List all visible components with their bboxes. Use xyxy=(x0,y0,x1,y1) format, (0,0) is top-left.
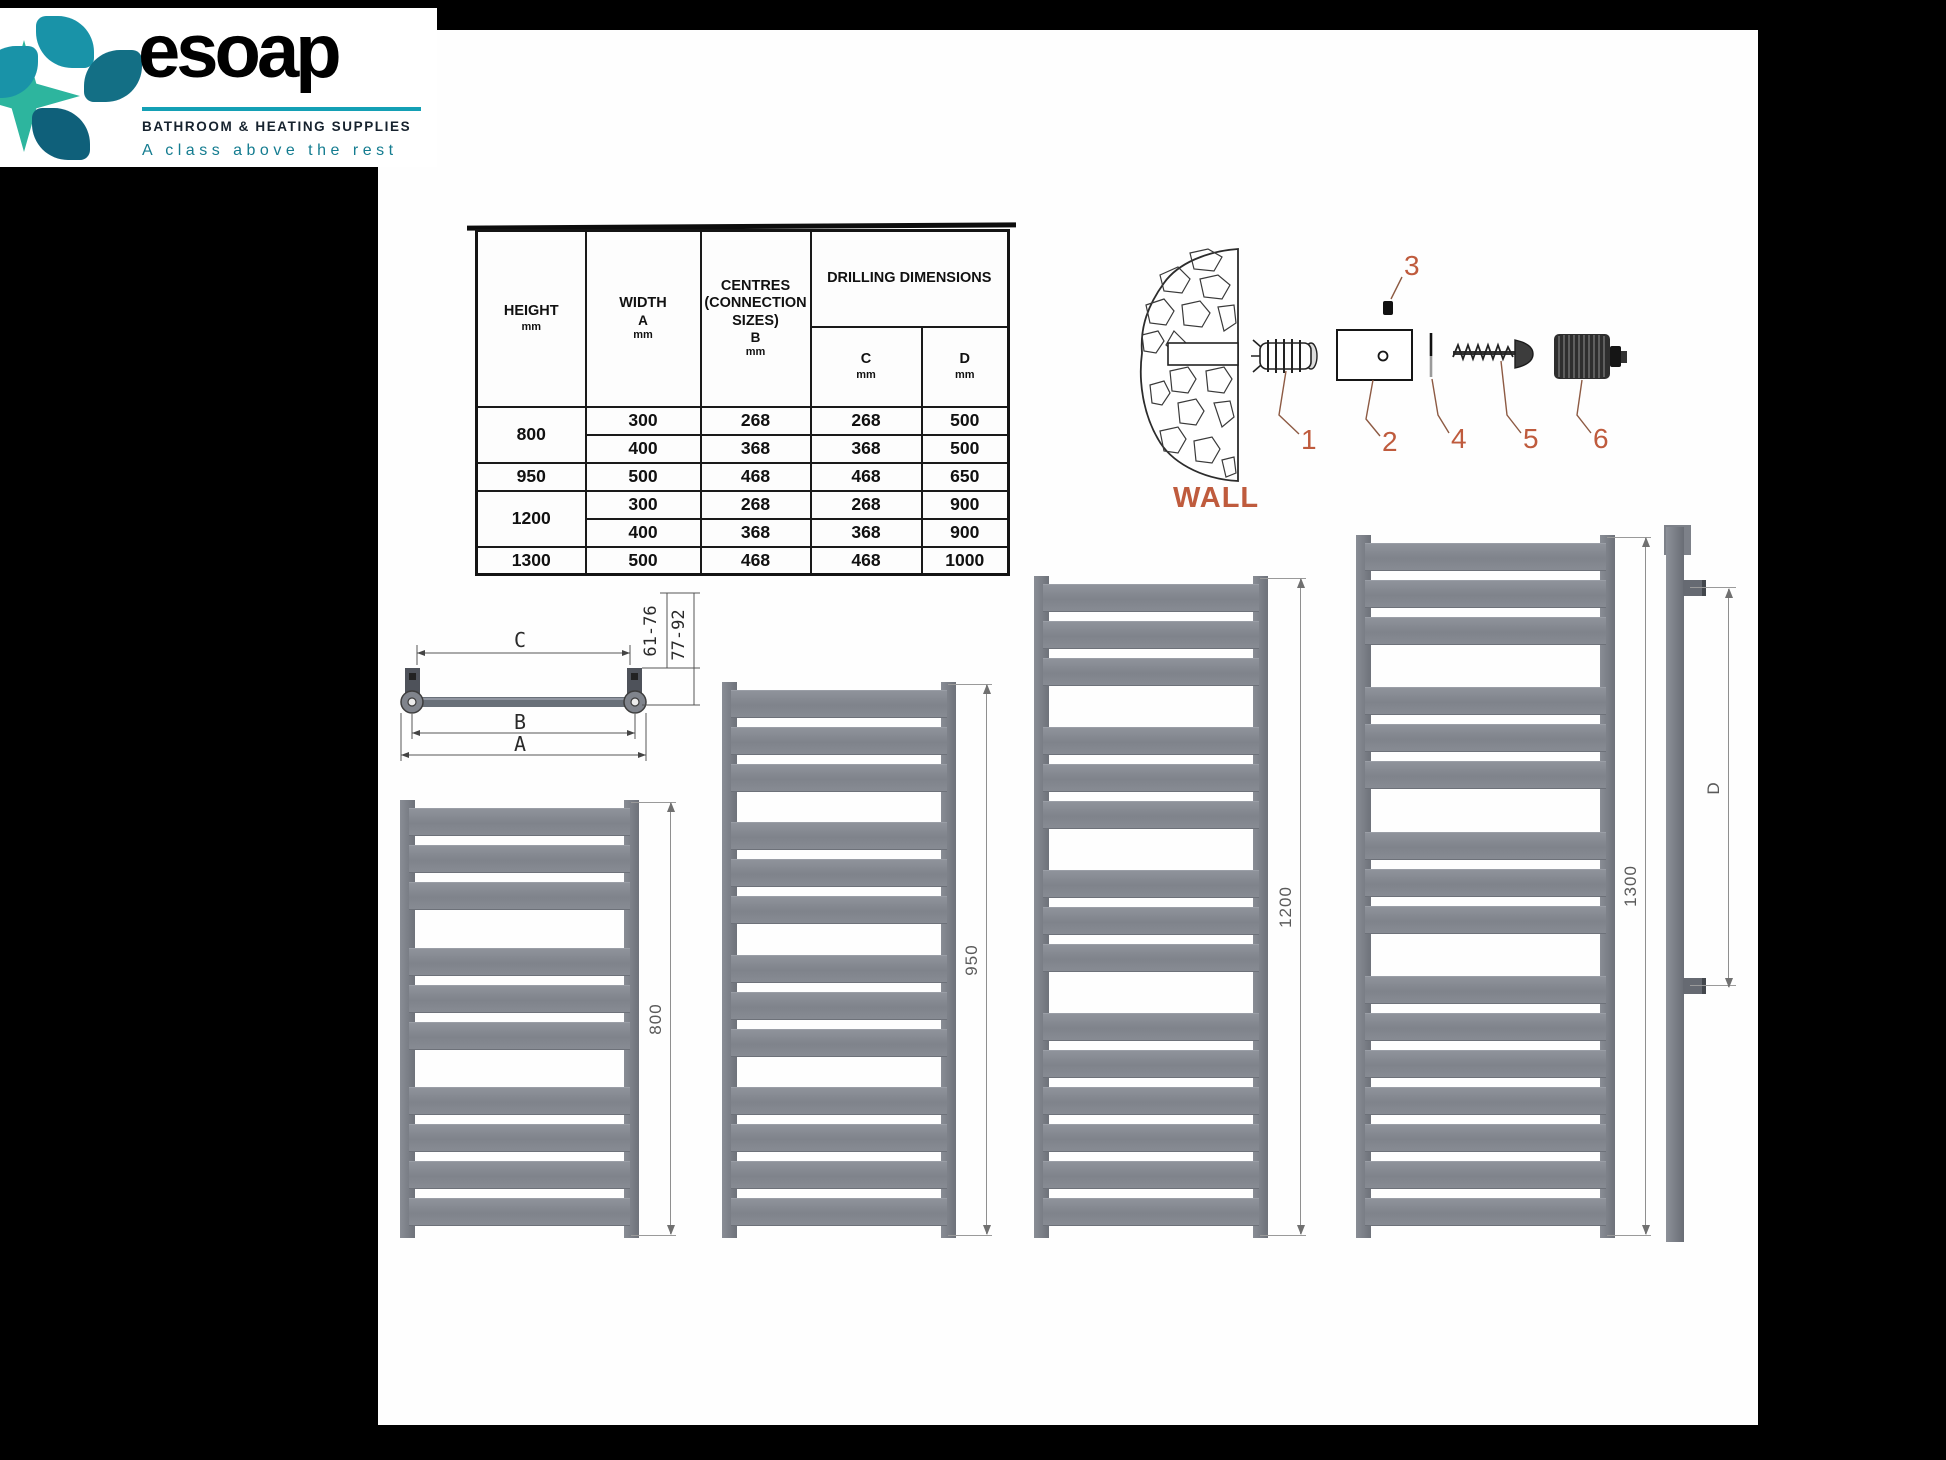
slat-gap xyxy=(1365,934,1606,976)
slat-group xyxy=(1043,727,1259,829)
slat-group xyxy=(409,1087,630,1226)
slat xyxy=(409,948,630,976)
slat-gap xyxy=(1365,645,1606,687)
slat xyxy=(731,822,947,850)
slat xyxy=(1043,764,1259,792)
slat xyxy=(1043,621,1259,649)
radiator-height-label: 1300 xyxy=(1621,862,1641,910)
slat xyxy=(1043,1198,1259,1226)
dim-line-height: 1200 xyxy=(1300,579,1301,1234)
dim-ext-bottom xyxy=(631,1235,676,1236)
slat-group xyxy=(731,822,947,924)
radiator-height-label: 950 xyxy=(962,941,982,978)
dim-ext-bottom xyxy=(1260,1235,1306,1236)
slat xyxy=(731,1029,947,1057)
side-view-bracket-bottom xyxy=(1683,978,1706,994)
radiator-height-label: 1200 xyxy=(1276,883,1296,931)
slat-gap xyxy=(409,1050,630,1088)
slat xyxy=(731,690,947,718)
slat xyxy=(1365,724,1606,752)
slat xyxy=(1365,906,1606,934)
radiator-1300 xyxy=(1356,535,1615,1238)
slat-group xyxy=(731,690,947,792)
slat xyxy=(409,808,630,836)
slat-group xyxy=(1365,832,1606,934)
radiator-slats xyxy=(1365,543,1606,1226)
slat xyxy=(1365,1087,1606,1115)
slat-group xyxy=(731,955,947,1057)
slat-gap xyxy=(409,910,630,948)
dim-line-height: 950 xyxy=(986,685,987,1234)
slat xyxy=(1043,1087,1259,1115)
radiator-1200 xyxy=(1034,576,1268,1238)
side-dim-line: D xyxy=(1728,589,1729,987)
slat xyxy=(1043,1124,1259,1152)
slat-group xyxy=(409,948,630,1050)
slat xyxy=(731,992,947,1020)
slat xyxy=(1365,687,1606,715)
slat-group xyxy=(1365,543,1606,645)
slat-gap xyxy=(731,1057,947,1087)
slat-gap xyxy=(1365,789,1606,831)
slat xyxy=(1365,1161,1606,1189)
slat-group xyxy=(731,1087,947,1226)
radiator-slats xyxy=(1043,584,1259,1226)
slat xyxy=(1043,870,1259,898)
product-spec-sheet: esoap BATHROOM & HEATING SUPPLIES A clas… xyxy=(0,0,1946,1460)
slat xyxy=(409,882,630,910)
slat xyxy=(1365,543,1606,571)
dim-ext-bottom xyxy=(1607,1235,1651,1236)
slat xyxy=(1043,944,1259,972)
slat xyxy=(409,985,630,1013)
slat-group xyxy=(1043,1013,1259,1226)
radiator-views: 80095012001300 xyxy=(0,0,1946,1460)
slat xyxy=(1043,1050,1259,1078)
slat xyxy=(1365,1198,1606,1226)
side-dim-label: D xyxy=(1704,778,1724,797)
slat xyxy=(1043,801,1259,829)
radiator-800 xyxy=(400,800,639,1238)
slat xyxy=(731,955,947,983)
radiator-slats xyxy=(731,690,947,1226)
slat-gap xyxy=(1043,972,1259,1013)
slat-group xyxy=(1365,687,1606,789)
dim-line-height: 1300 xyxy=(1645,538,1646,1234)
slat xyxy=(409,845,630,873)
slat xyxy=(731,1124,947,1152)
slat-gap xyxy=(1043,686,1259,727)
slat-group xyxy=(1043,870,1259,972)
slat xyxy=(1365,976,1606,1004)
slat-group xyxy=(1365,976,1606,1226)
slat-group xyxy=(409,808,630,910)
slat xyxy=(1043,584,1259,612)
slat xyxy=(409,1022,630,1050)
slat-gap xyxy=(731,792,947,822)
slat xyxy=(731,764,947,792)
slat xyxy=(1043,907,1259,935)
slat-gap xyxy=(731,924,947,954)
slat xyxy=(731,859,947,887)
slat xyxy=(409,1124,630,1152)
slat xyxy=(1365,869,1606,897)
slat xyxy=(731,1161,947,1189)
side-view-bar xyxy=(1666,527,1684,1242)
slat xyxy=(1365,1013,1606,1041)
slat-gap xyxy=(1043,829,1259,870)
slat xyxy=(1365,1050,1606,1078)
slat xyxy=(1365,832,1606,860)
slat xyxy=(731,1198,947,1226)
slat xyxy=(1043,658,1259,686)
side-view-bracket-top xyxy=(1683,580,1706,596)
slat xyxy=(1043,727,1259,755)
slat xyxy=(1043,1161,1259,1189)
slat xyxy=(409,1198,630,1226)
radiator-950 xyxy=(722,682,956,1238)
slat xyxy=(409,1161,630,1189)
slat xyxy=(1365,617,1606,645)
radiator-slats xyxy=(409,808,630,1226)
slat-group xyxy=(1043,584,1259,686)
slat xyxy=(731,1087,947,1115)
slat xyxy=(1043,1013,1259,1041)
slat xyxy=(731,727,947,755)
slat xyxy=(409,1087,630,1115)
dim-line-height: 800 xyxy=(670,803,671,1234)
slat xyxy=(1365,761,1606,789)
slat xyxy=(1365,1124,1606,1152)
slat xyxy=(1365,580,1606,608)
dim-ext-bottom xyxy=(948,1235,992,1236)
slat xyxy=(731,896,947,924)
radiator-height-label: 800 xyxy=(646,1000,666,1037)
